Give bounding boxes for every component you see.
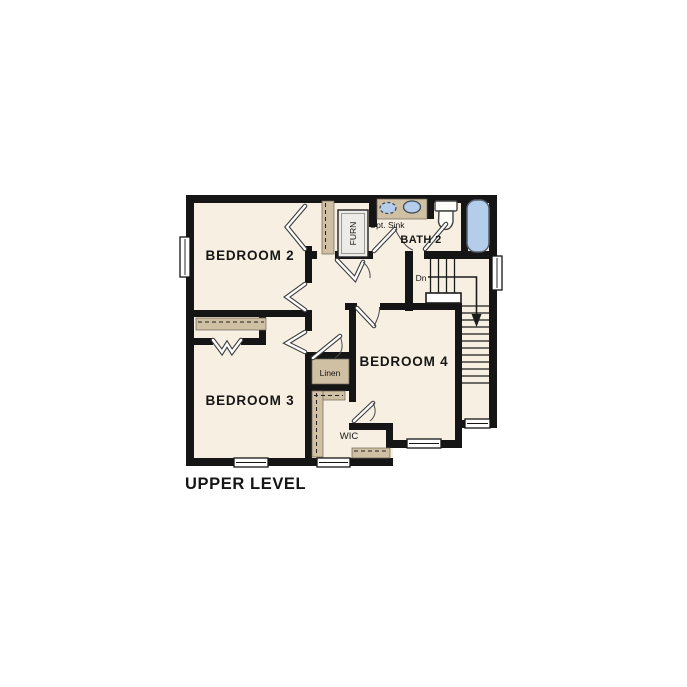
wall [186, 310, 312, 317]
wall [193, 338, 213, 345]
bedroom3-label: BEDROOM 3 [206, 393, 295, 408]
bedroom4-label: BEDROOM 4 [360, 354, 449, 369]
wall [241, 338, 266, 345]
furnace-label: FURN [348, 222, 358, 246]
wall [305, 359, 312, 458]
wall [489, 195, 497, 428]
floorplan-svg: BEDROOM 2 BEDROOM 3 BEDROOM 4 BATH 2 Opt… [0, 0, 687, 687]
bedroom3-closet-shelf [196, 318, 266, 330]
wall [305, 251, 317, 259]
optional-sink-basin [380, 203, 396, 214]
wic-label: WIC [340, 431, 359, 442]
level-title: UPPER LEVEL [185, 475, 306, 493]
wall [186, 458, 393, 466]
furnace-chase [322, 201, 334, 254]
stairs-down-label: Dn [416, 273, 427, 283]
wall [186, 195, 194, 466]
wall [455, 303, 462, 448]
floorplan-page: BEDROOM 2 BEDROOM 3 BEDROOM 4 BATH 2 Opt… [0, 0, 687, 687]
wall [305, 384, 349, 391]
wic-shelf-bottom [352, 448, 390, 458]
stair-rail [426, 293, 461, 303]
opt-sink-label: Opt. Sink [370, 220, 406, 230]
wall [427, 195, 434, 219]
wall [380, 303, 462, 310]
wall [405, 251, 413, 311]
wall [349, 423, 393, 430]
linen-label: Linen [320, 368, 341, 378]
wall [349, 303, 356, 402]
toilet-tank [435, 201, 457, 211]
bathtub [467, 200, 489, 252]
bedroom2-label: BEDROOM 2 [206, 248, 295, 263]
sink-basin [404, 201, 421, 213]
wall [424, 251, 497, 259]
wic-shelf-left [312, 391, 323, 457]
bath2-label: BATH 2 [400, 234, 441, 246]
